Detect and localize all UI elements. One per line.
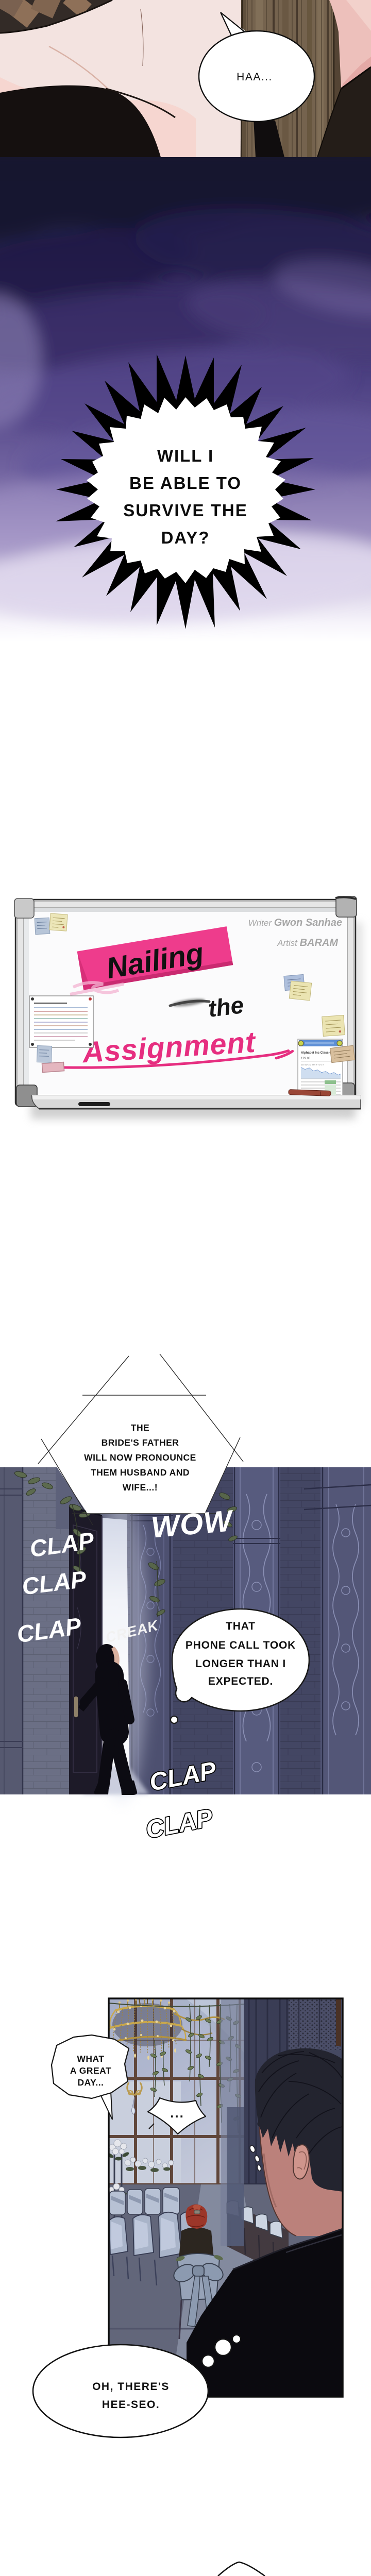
svg-text:...: ... — [170, 2105, 184, 2121]
svg-text:Alphabet Inc Class C: Alphabet Inc Class C — [301, 1052, 332, 1055]
svg-text:BRIDE'S FATHER: BRIDE'S FATHER — [102, 1437, 179, 1448]
svg-text:WILL NOW PRONOUNCE: WILL NOW PRONOUNCE — [84, 1452, 196, 1463]
svg-text:EXPECTED.: EXPECTED. — [208, 1675, 273, 1687]
svg-text:SURVIVE THE: SURVIVE THE — [123, 501, 247, 520]
svg-text:WILL I: WILL I — [157, 446, 214, 465]
svg-text:PHONE CALL TOOK: PHONE CALL TOOK — [185, 1639, 296, 1651]
svg-text:Artist BARAM: Artist BARAM — [277, 937, 339, 948]
svg-text:WHAT: WHAT — [77, 2054, 104, 2064]
svg-text:THEM HUSBAND AND: THEM HUSBAND AND — [91, 1467, 190, 1478]
svg-text:the: the — [207, 991, 245, 1022]
svg-text:HAA...: HAA... — [237, 71, 273, 83]
svg-text:129.03: 129.03 — [301, 1057, 311, 1060]
svg-text:CLAP: CLAP — [144, 1804, 215, 1844]
svg-text:DAY?: DAY? — [161, 528, 210, 547]
svg-text:LONGER THAN I: LONGER THAN I — [195, 1658, 286, 1670]
svg-text:Writer Gwon Sanhae: Writer Gwon Sanhae — [248, 917, 342, 928]
svg-text:THAT: THAT — [226, 1620, 256, 1632]
svg-text:DAY...: DAY... — [78, 2077, 104, 2088]
svg-text:OH, THERE'S: OH, THERE'S — [92, 2381, 170, 2393]
svg-text:BE ABLE TO: BE ABLE TO — [129, 473, 242, 493]
svg-text:HEE-SEO.: HEE-SEO. — [102, 2399, 160, 2411]
svg-text:A GREAT: A GREAT — [70, 2065, 111, 2076]
svg-text:THE: THE — [131, 1422, 150, 1433]
svg-text:WIFE...!: WIFE...! — [123, 1482, 158, 1493]
svg-text:1D 5D 1M 6M YTD 1Y: 1D 5D 1M 6M YTD 1Y — [301, 1063, 324, 1066]
